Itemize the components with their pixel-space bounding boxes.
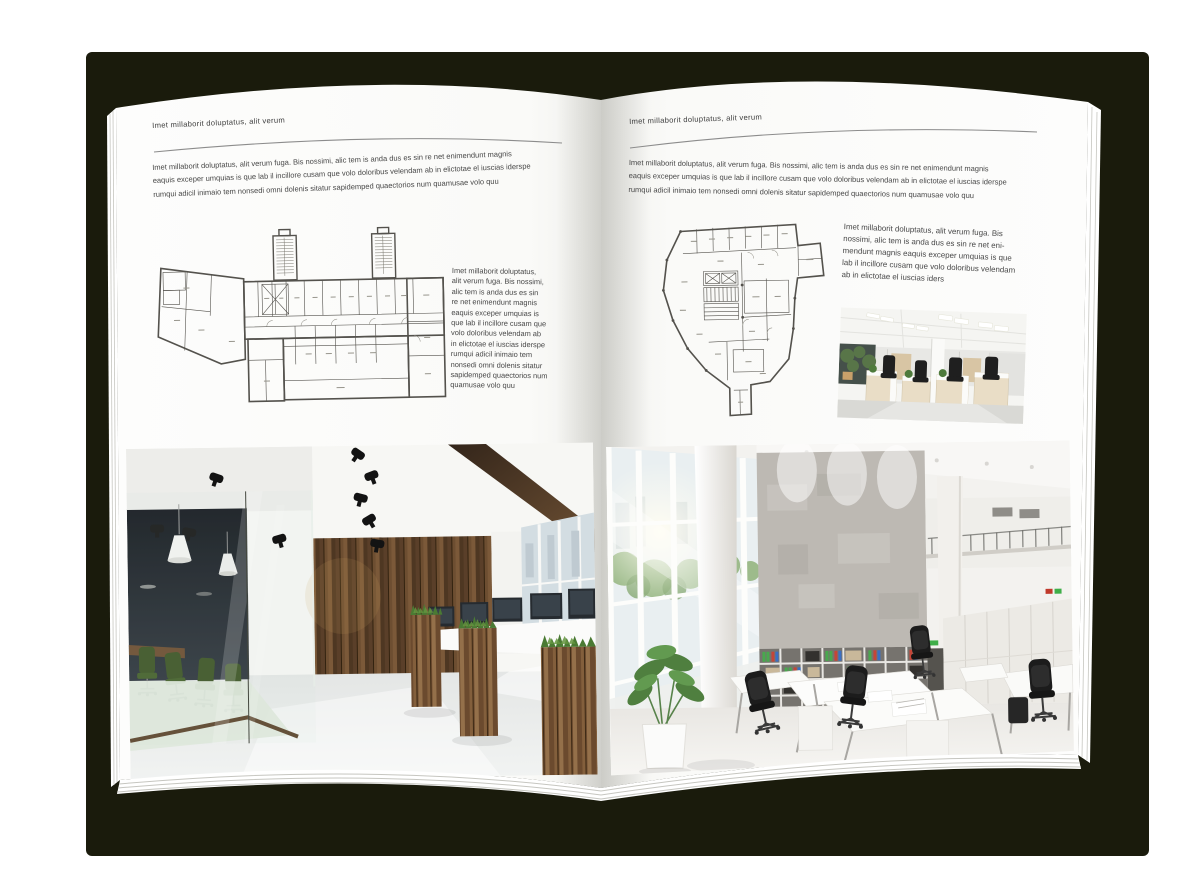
right-side-text: Imet millaborit doluptatus, alit verum f… (841, 221, 1017, 289)
stair-tower (273, 227, 396, 280)
right-large-office-photo (606, 441, 1075, 777)
right-page-intro: Imet millaborit doluptatus, alit verum f… (628, 156, 1007, 203)
concrete-wall (756, 441, 927, 649)
left-floorplan-figure (152, 224, 450, 416)
magazine-spread-mockup: Imet millaborit doluptatus, alit verum I… (0, 0, 1200, 891)
glass-meeting-room (127, 490, 317, 751)
right-page-header: Imet millaborit doluptatus, alit verum (629, 112, 762, 126)
left-office-photo (126, 442, 598, 780)
waste-bin (1008, 697, 1028, 723)
left-page-header: Imet millaborit doluptatus, alit verum (152, 115, 285, 130)
left-page-intro: Imet millaborit doluptatus, alit verum f… (152, 146, 531, 201)
right-header-rule (630, 130, 1037, 148)
side-line: quamusae volo quu (450, 380, 547, 392)
right-floorplan-figure (646, 219, 843, 422)
right-small-office-photo (837, 307, 1027, 424)
left-side-text: Imet millaborit doluptatus, alit verum f… (450, 266, 549, 392)
